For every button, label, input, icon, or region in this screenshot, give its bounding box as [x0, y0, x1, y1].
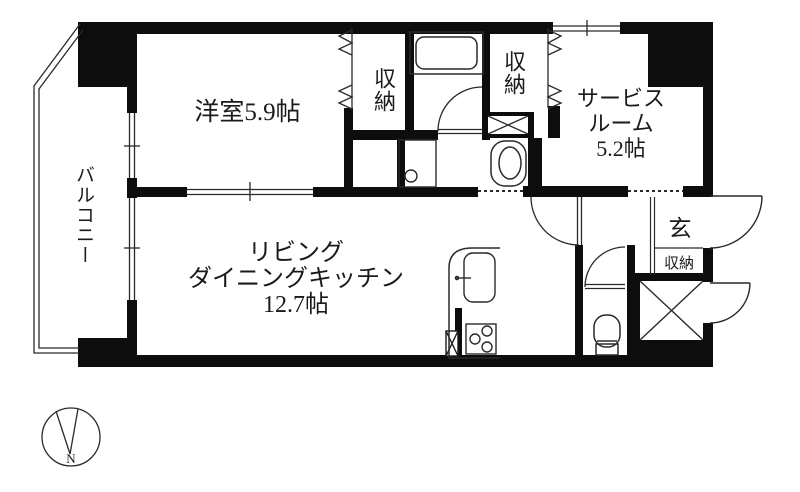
kitchen-sink [455, 253, 495, 302]
meter-box-door-arc [710, 283, 750, 323]
closet-east-label: 収納 [497, 45, 529, 100]
bathtub [410, 32, 483, 74]
ldk-label-line2: ダイニングキッチン [185, 266, 407, 292]
closet-folding-door-west [339, 28, 352, 110]
service-room-label: サービス ルーム 5.2帖 [560, 86, 682, 161]
gas-stove [466, 324, 496, 354]
entrance-label: 玄 [664, 209, 696, 243]
balcony-label: バルコニー [70, 155, 97, 275]
western-room-label: 洋室5.9帖 [160, 92, 335, 128]
service-room-label-line3: 5.2帖 [560, 136, 682, 161]
floorplan: 洋室5.9帖 リビング ダイニングキッチン 12.7帖 サービス ルーム 5.2… [0, 0, 800, 492]
kitchen-pipe-space-icon [446, 331, 458, 356]
entrance-storage-label: 収納 [655, 252, 703, 273]
toilet [594, 315, 620, 355]
compass-north-label: N [63, 451, 79, 467]
service-room-label-line2: ルーム [560, 111, 682, 136]
hall-door-arc [531, 197, 582, 245]
closet-west-label: 収納 [367, 62, 399, 117]
washbasin [491, 141, 526, 186]
ldk-label-line1: リビング [185, 240, 407, 266]
ldk-label: リビング ダイニングキッチン 12.7帖 [185, 240, 407, 318]
service-room-label-line1: サービス [560, 86, 682, 111]
bathroom-door-arc [438, 87, 482, 134]
ldk-label-line3: 12.7帖 [185, 292, 407, 318]
toilet-door-arc [585, 247, 625, 289]
entrance-door-arc [710, 196, 762, 248]
